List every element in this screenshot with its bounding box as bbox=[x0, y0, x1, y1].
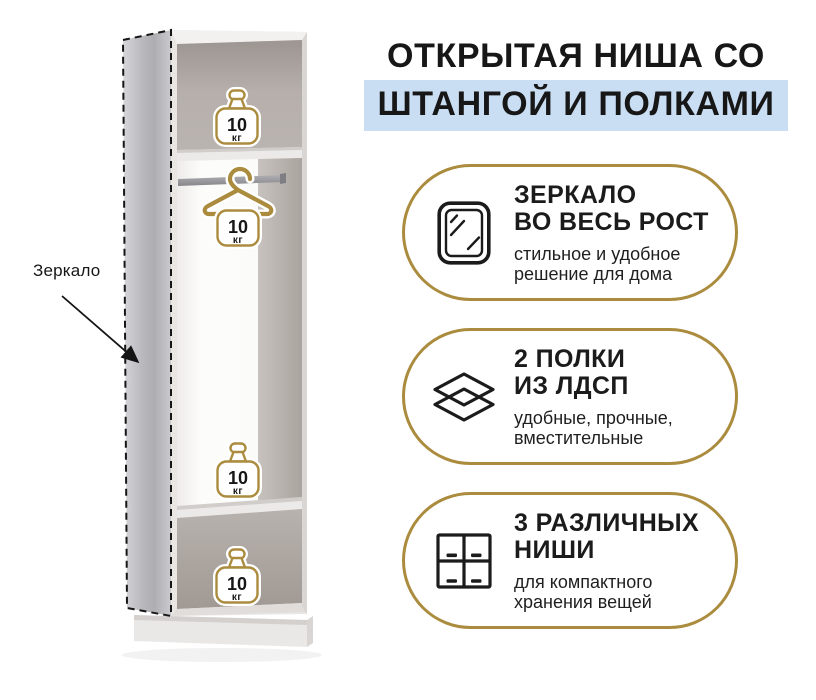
weight-icon: 10 кг bbox=[218, 211, 259, 247]
feature-desc-line: хранения вещей bbox=[514, 592, 699, 612]
feature-desc-line: вместительные bbox=[514, 428, 673, 448]
feature-card-mirror: ЗЕРКАЛО ВО ВЕСЬ РОСТ стильное и удобное … bbox=[402, 164, 738, 301]
mirror-icon bbox=[432, 201, 496, 265]
weight-value: 10 bbox=[227, 115, 247, 135]
feature-title-line: ВО ВЕСЬ РОСТ bbox=[514, 209, 709, 236]
feature-card-niches: 3 РАЗЛИЧНЫХ НИШИ для компактного хранени… bbox=[402, 492, 738, 629]
feature-title-line: 3 РАЗЛИЧНЫХ bbox=[514, 510, 699, 537]
mirror-panel bbox=[123, 30, 171, 616]
mirror-label: Зеркало bbox=[33, 261, 100, 281]
floor-shadow bbox=[122, 648, 322, 662]
feature-title-line: НИШИ bbox=[514, 537, 699, 564]
niches-icon bbox=[432, 532, 496, 590]
weight-value: 10 bbox=[228, 217, 248, 237]
feature-text: 2 ПОЛКИ ИЗ ЛДСП удобные, прочные, вмести… bbox=[514, 346, 673, 448]
weight-value: 10 bbox=[227, 574, 247, 594]
feature-desc-line: стильное и удобное bbox=[514, 244, 709, 264]
weight-unit: кг bbox=[233, 486, 243, 497]
weight-value: 10 bbox=[228, 468, 248, 488]
weight-unit: кг bbox=[233, 235, 243, 246]
title-line-1: ОТКРЫТАЯ НИША СО bbox=[350, 36, 802, 76]
page-title: ОТКРЫТАЯ НИША СО ШТАНГОЙ И ПОЛКАМИ bbox=[350, 36, 802, 131]
weight-unit: кг bbox=[232, 592, 242, 603]
shelves-icon bbox=[432, 372, 496, 422]
weight-unit: кг bbox=[232, 133, 242, 144]
feature-desc-line: удобные, прочные, bbox=[514, 408, 673, 428]
feature-desc-line: для компактного bbox=[514, 572, 699, 592]
feature-title-line: 2 ПОЛКИ bbox=[514, 346, 673, 373]
wardrobe-plinth bbox=[134, 615, 313, 647]
feature-title-line: ЗЕРКАЛО bbox=[514, 182, 709, 209]
feature-text: 3 РАЗЛИЧНЫХ НИШИ для компактного хранени… bbox=[514, 510, 699, 612]
title-line-2-highlighted: ШТАНГОЙ И ПОЛКАМИ bbox=[364, 80, 787, 131]
feature-card-shelves: 2 ПОЛКИ ИЗ ЛДСП удобные, прочные, вмести… bbox=[402, 328, 738, 465]
feature-desc-line: решение для дома bbox=[514, 264, 709, 284]
infographic-page: 10 кг 10 кг 10 bbox=[0, 0, 816, 700]
feature-text: ЗЕРКАЛО ВО ВЕСЬ РОСТ стильное и удобное … bbox=[514, 182, 709, 284]
feature-title-line: ИЗ ЛДСП bbox=[514, 373, 673, 400]
